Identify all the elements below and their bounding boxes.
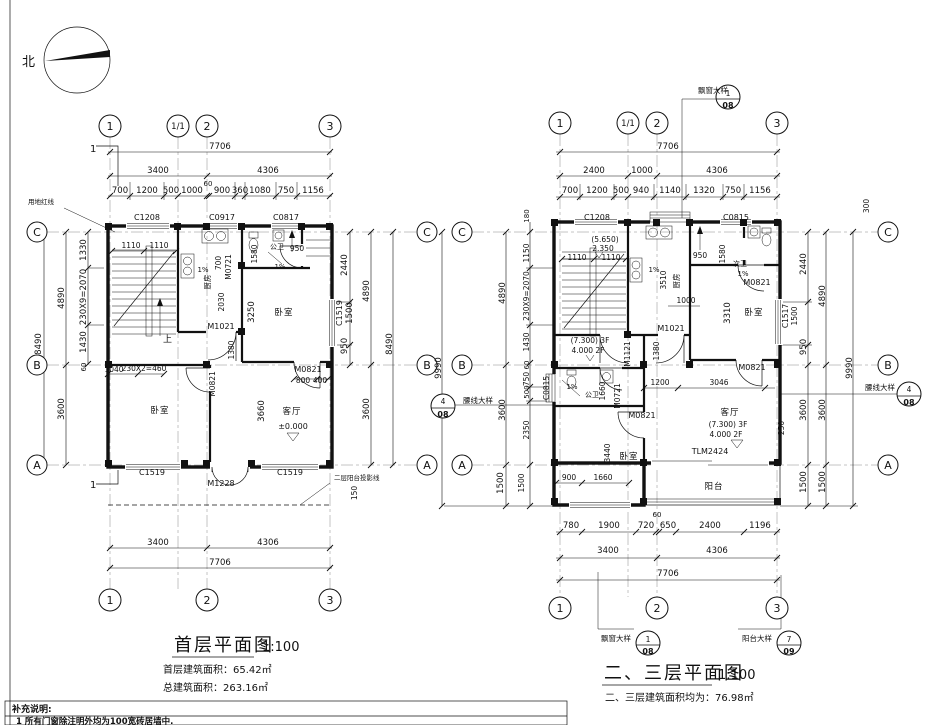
p1-dim-total-height: 8490 [34, 333, 44, 355]
p2-dim-b1: 3400 [597, 546, 619, 556]
p2-dim: 500 [613, 186, 629, 196]
p1-title: 首层平面图 [174, 635, 274, 656]
p1-room-kitchen: 厨房 [202, 275, 212, 290]
p2-dim: 1500 [517, 473, 526, 492]
p2-bubble-a-r: A [884, 459, 892, 472]
p1-bubble-a-r: A [423, 459, 431, 472]
p1-section-number: 1 [90, 480, 96, 491]
p1-dim: 4890 [362, 280, 372, 302]
p1-projection-label: 二层阳台投影线 [334, 473, 380, 482]
p2-dim: 1500 [496, 472, 506, 494]
p1-dim: 950 [290, 244, 305, 253]
p1-redline-label: 用地红线 [28, 197, 55, 206]
p1-bubble-b-r: B [423, 359, 431, 372]
p2-callout-waist-right: 腰线大样 [865, 382, 895, 392]
p1-dim-w1: 3400 [147, 166, 169, 176]
p1-dim-b2: 4306 [257, 538, 279, 548]
p1-stair-dim: 1110 [149, 241, 168, 250]
p1-door-label: M0721 [224, 254, 233, 280]
p2-dim: 1140 [659, 186, 681, 196]
p1-door-label: M1021 [207, 322, 234, 331]
p1-dim: 3600 [362, 398, 372, 420]
p2-dim-w1: 2400 [583, 166, 605, 176]
p2-level-living-3f: (7.300) 3F [709, 420, 748, 429]
p2-window-label-right: C1517 [781, 304, 790, 329]
p1-room-bath: 公卫 [270, 243, 284, 251]
p2-callout-balcony: 阳台大样 [742, 633, 772, 643]
p2-bubble-b-r: B [884, 359, 892, 372]
p2-area-line1: 二、三层建筑面积均为：76.98㎡ [605, 691, 754, 704]
p2-door-label: M0721 [613, 383, 622, 409]
p1-door-label: M0821 [208, 371, 217, 397]
p1-title-scale: 1:100 [262, 640, 299, 655]
p2-callout-sheet: 08 [642, 647, 654, 656]
p1-dim: 150 [350, 486, 359, 501]
p1-stair-up: 上 [163, 334, 172, 345]
p2-dim: 1500 [818, 471, 828, 493]
p2-bubble-1-1: 1/1 [621, 119, 635, 129]
p1-dim-h2: 3600 [57, 398, 67, 420]
p2-bubble-3b: 3 [774, 602, 781, 615]
p2-dim: 1430 [522, 332, 531, 351]
p1-dim: 360 [232, 186, 248, 196]
p2-window-label: C1208 [584, 213, 610, 222]
p2-bubble-1b: 1 [557, 602, 564, 615]
p2-bubble-a: A [458, 459, 466, 472]
p1-door-label-entry: M1228 [207, 479, 234, 488]
p1-dim: 1000 [181, 186, 203, 196]
p2-dim-total-height: 9990 [434, 357, 444, 379]
p2-dim: 650 [660, 521, 676, 531]
p2-bath2-fixtures [697, 226, 771, 250]
p2-door-label-balc: TLM2424 [691, 447, 729, 456]
p1-dim: 2440 [340, 254, 350, 276]
p2-dim: 1156 [749, 186, 771, 196]
p2-callout-leaders [455, 99, 897, 629]
notes-item-1: 1 所有门窗除注明外均为100宽砖居墙中. [16, 716, 173, 725]
p1-stairs [112, 246, 176, 336]
p1-dim: 60 [80, 363, 88, 372]
p2-dim: 9990 [845, 357, 855, 379]
p1-dim: 1430 [79, 331, 89, 353]
p2-dim: 3310 [723, 302, 733, 324]
p2-dim: 500 [523, 385, 531, 398]
p1-dim: 1156 [302, 186, 324, 196]
p1-dim: 1330 [79, 239, 89, 261]
p1-dim-h1: 4890 [57, 287, 67, 309]
p2-door-label: M0821 [738, 363, 765, 372]
p2-slope: 1% [737, 270, 748, 278]
p2-callout-baywin-bottom: 飘窗大样 [601, 633, 631, 643]
p1-level-zero: ±0.000 [278, 422, 308, 431]
p2-bubble-3: 3 [774, 117, 781, 130]
plan1: 1 1/1 2 3 1 2 3 C B A C B A 7706 3400 43… [27, 115, 437, 694]
p2-room-bed1: 卧室 [744, 307, 763, 318]
p2-dim: 1660 [598, 381, 607, 400]
p1-room-living: 客厅 [282, 406, 301, 417]
p2-dim: 3600 [799, 399, 809, 421]
p1-bubble-b: B [33, 359, 41, 372]
floor-plan-drawing: 北 [0, 0, 951, 725]
p2-callout-num: 1 [726, 89, 731, 98]
p2-dim: 1900 [598, 521, 620, 531]
p2-dim: 1200 [586, 186, 608, 196]
architectural-drawing-sheet: 北 [0, 0, 951, 725]
p1-dim: 1380 [227, 340, 236, 359]
p2-level-marker [731, 440, 743, 448]
p1-dim: 1200 [136, 186, 158, 196]
p1-dim: 950 [340, 338, 350, 354]
p1-dim: 230X2=460 [122, 364, 167, 373]
p2-room-balcony: 阳台 [704, 481, 723, 492]
p2-dim: 1000 [676, 296, 695, 305]
p2-dim-b2: 4306 [706, 546, 728, 556]
p2-dim: 950 [799, 339, 809, 355]
p1-area-line1: 首层建筑面积：65.42㎡ [163, 663, 272, 676]
p2-dim: 4890 [818, 285, 828, 307]
p2-room-living: 客厅 [720, 407, 739, 418]
p1-slope: 1% [274, 263, 285, 271]
p2-window-label-left: C0815 [542, 376, 551, 401]
p2-door-label: M0821 [628, 411, 655, 420]
p1-dim: 750 [278, 186, 294, 196]
p1-dim: 1500 [345, 302, 355, 324]
p2-dim: 1580 [718, 244, 727, 263]
p1-dim: 1580 [250, 244, 259, 263]
p1-bubble-3b: 3 [327, 594, 334, 607]
p1-bubble-3: 3 [327, 120, 334, 133]
p2-level-stair-3f: (7.300) 3F [571, 336, 610, 345]
p2-dim: 60 [653, 511, 662, 519]
p2-callout-sheet: 08 [903, 398, 915, 407]
p2-dim: 3046 [709, 378, 728, 387]
p1-section-number: 1 [90, 144, 96, 155]
p1-bubble-2b: 2 [204, 594, 211, 607]
p1-stair-dim: 1110 [121, 241, 140, 250]
p2-callout-sheet: 08 [722, 101, 734, 110]
p1-door-label: M0821 [294, 365, 321, 374]
p2-dim: 2350 [522, 420, 531, 439]
p2-title-scale: 1:100 [718, 668, 755, 683]
p2-room-bed2: 卧室 [619, 451, 638, 462]
p1-window-label: C0917 [209, 213, 235, 222]
p2-bubble-2b: 2 [654, 602, 661, 615]
p2-dim: 3600 [818, 399, 828, 421]
p2-dim: 4890 [498, 282, 508, 304]
p2-dim: 720 [638, 521, 654, 531]
p2-dim: 2400 [699, 521, 721, 531]
p1-bubble-1-1: 1/1 [171, 122, 185, 132]
p2-door-label: M0821 [743, 278, 770, 287]
p2-dim: 1380 [652, 341, 661, 360]
p2-dim-w3: 4306 [706, 166, 728, 176]
p1-dim: 1080 [249, 186, 271, 196]
p1-redline-leader [64, 208, 115, 232]
notes-box: 补充说明: 1 所有门窗除注明外均为100宽砖居墙中. [5, 701, 567, 725]
p1-dim: 800 [296, 376, 311, 385]
p1-area-line2: 总建筑面积：263.16㎡ [163, 681, 268, 694]
p2-callout-baywin-top: 飘窗大样 [698, 85, 728, 95]
north-label: 北 [22, 55, 35, 70]
p1-bubble-a: A [33, 459, 41, 472]
p2-dim-lines [439, 149, 858, 583]
p2-dim: 940 [633, 186, 649, 196]
p2-dim: 780 [563, 521, 579, 531]
p2-dim: 60 [523, 361, 531, 370]
p2-stair-dim: 1110 [567, 253, 586, 262]
p1-window-label-right: C1519 [335, 300, 344, 326]
p2-dim: 250 [777, 421, 786, 436]
plan2: 1 1/1 2 3 1 2 3 C B A C B A 7706 2400 10… [431, 85, 921, 704]
p2-dim: 1150 [522, 243, 531, 262]
p2-dim-total-width: 7706 [657, 142, 679, 152]
p2-callout-waist-left: 腰线大样 [463, 395, 493, 405]
p1-room-bed1: 卧室 [274, 307, 293, 318]
p2-bubble-2: 2 [654, 117, 661, 130]
p1-grid-lines [47, 137, 417, 589]
p2-dim: 230X9=2070 [522, 271, 531, 321]
p1-dim: 60 [204, 180, 213, 188]
p1-dim-w2: 4306 [257, 166, 279, 176]
p2-bubble-c: C [458, 226, 466, 239]
p2-dim: 1660 [593, 473, 612, 482]
p2-room-bath: 公卫 [585, 391, 599, 399]
p1-dim-btotal: 7706 [209, 558, 231, 568]
p2-dim: 750 [725, 186, 741, 196]
p2-dim: 3600 [498, 399, 508, 421]
p1-dim: 3660 [257, 400, 267, 422]
p2-dim: 900 [562, 473, 577, 482]
p2-bubble-b: B [458, 359, 466, 372]
p1-window-label: C1519 [139, 468, 165, 477]
p2-slope: 1% [566, 383, 577, 391]
p2-dim: 300 [862, 199, 871, 214]
p1-bubble-1b: 1 [107, 594, 114, 607]
p2-dim: 1196 [749, 521, 771, 531]
p2-dim: 750 [522, 372, 531, 387]
p2-dim: 700 [562, 186, 578, 196]
p2-dim: 950 [693, 251, 708, 260]
p2-level-stair-2f: 4.000 2F [572, 346, 605, 355]
p2-dim: 2440 [799, 253, 809, 275]
p1-dim: 3250 [247, 301, 257, 323]
p1-dim: 400 [313, 376, 328, 385]
p2-callout-num: 4 [441, 397, 446, 406]
p2-callout-num: 7 [787, 635, 792, 644]
p1-dim: 8490 [385, 333, 395, 355]
p1-dim: 700 [214, 256, 223, 271]
p2-dim: 1320 [693, 186, 715, 196]
p1-bubble-c: C [33, 226, 41, 239]
p2-door-label: M1021 [657, 324, 684, 333]
p1-slope: 1% [197, 266, 208, 274]
p1-level-marker [287, 433, 299, 441]
p2-dim: 1500 [799, 471, 809, 493]
p2-dim: 3440 [603, 443, 612, 462]
p2-level-top: (5.650) [591, 235, 618, 244]
p1-window-label: C1208 [134, 213, 160, 222]
p2-callout-num: 1 [646, 635, 651, 644]
p1-room-bed2: 卧室 [150, 405, 169, 416]
notes-title: 补充说明: [11, 703, 52, 715]
p2-window-label: C0815 [723, 213, 749, 222]
p2-room-bath2: 次卫 [733, 259, 747, 268]
p2-dim-btotal: 7706 [657, 569, 679, 579]
p1-dim: 500 [163, 186, 179, 196]
p1-dim-total-width: 7706 [209, 142, 231, 152]
p2-stair-dim: 1110 [601, 253, 620, 262]
p2-dim: 180 [523, 209, 531, 222]
p1-dim: 700 [112, 186, 128, 196]
p2-callout-sheet: 09 [783, 647, 795, 656]
p1-dim: 2030 [217, 292, 226, 311]
p2-dim-w2: 1000 [631, 166, 653, 176]
p1-dim: 900 [214, 186, 230, 196]
p2-dim: 1500 [790, 306, 799, 325]
p2-bubble-c-r: C [884, 226, 892, 239]
p2-callout-num: 4 [907, 385, 912, 394]
p1-window-label: C0817 [273, 213, 299, 222]
p2-door-label: M1121 [623, 341, 632, 367]
p2-dim: 1200 [650, 378, 669, 387]
p1-bubble-2: 2 [204, 120, 211, 133]
p2-callout-sheet: 08 [437, 410, 449, 419]
p1-window-label: C1519 [277, 468, 303, 477]
north-arrow: 北 [22, 27, 110, 93]
p1-bubble-1: 1 [107, 120, 114, 133]
p1-dim-b1: 3400 [147, 538, 169, 548]
p2-level-mid: 2.350 [592, 244, 614, 253]
p2-dim: 3510 [659, 270, 668, 289]
p2-room-kitchen: 厨房 [671, 274, 681, 289]
p1-bubble-c-r: C [423, 226, 431, 239]
p2-bubble-1: 1 [557, 117, 564, 130]
p2-level-living-2f: 4.000 2F [710, 430, 743, 439]
p1-dim: 230X9=2070 [79, 269, 89, 325]
